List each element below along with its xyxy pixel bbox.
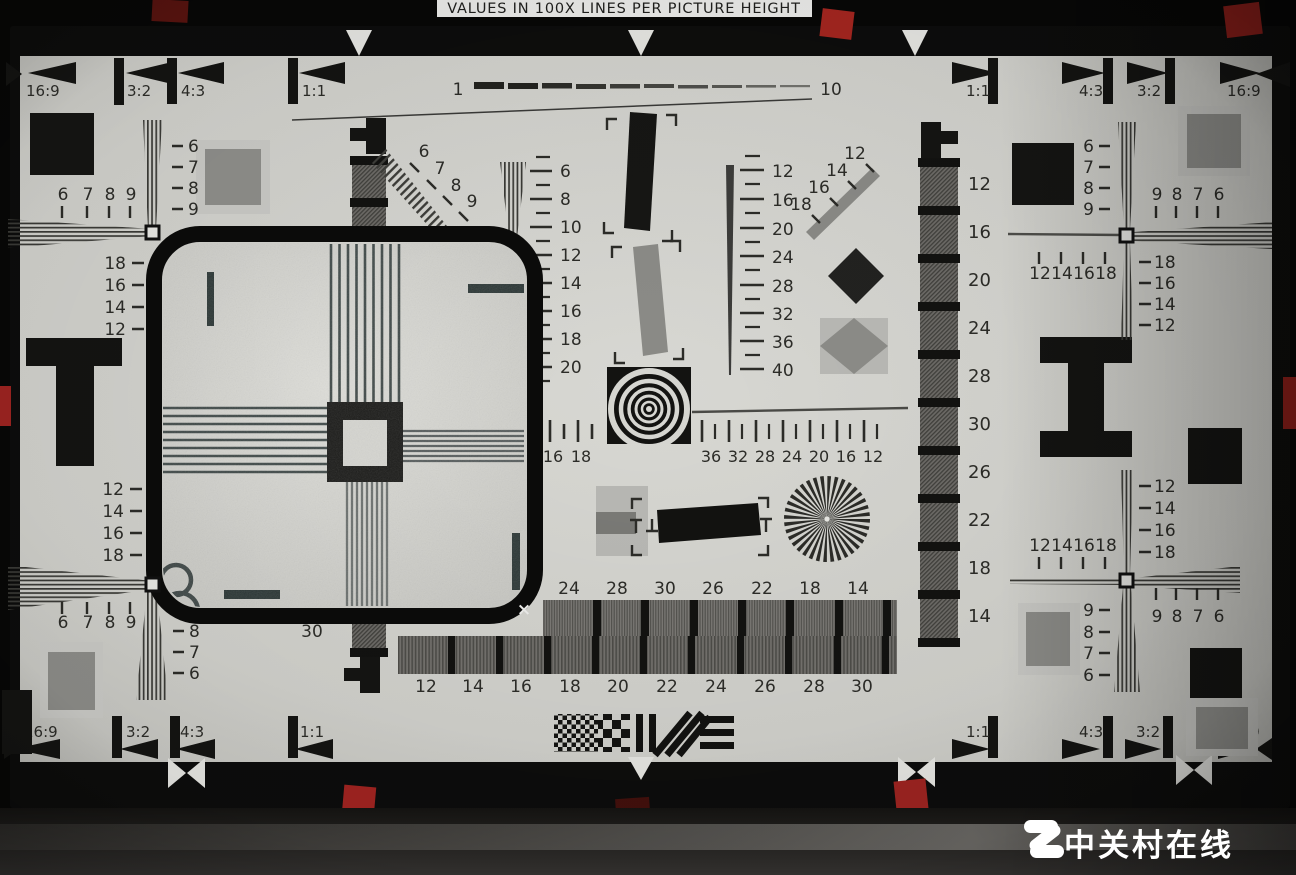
test-chart-scene: 16:9 3:2 4:3 1:1 1:1 4:3 3:2 16:9 16:9 3… bbox=[0, 0, 1296, 875]
photo-of-test-chart: 16:9 3:2 4:3 1:1 1:1 4:3 3:2 16:9 16:9 3… bbox=[0, 0, 1296, 875]
watermark-text: 中关村在线 bbox=[1064, 828, 1234, 864]
right-shade bbox=[1000, 0, 1296, 875]
